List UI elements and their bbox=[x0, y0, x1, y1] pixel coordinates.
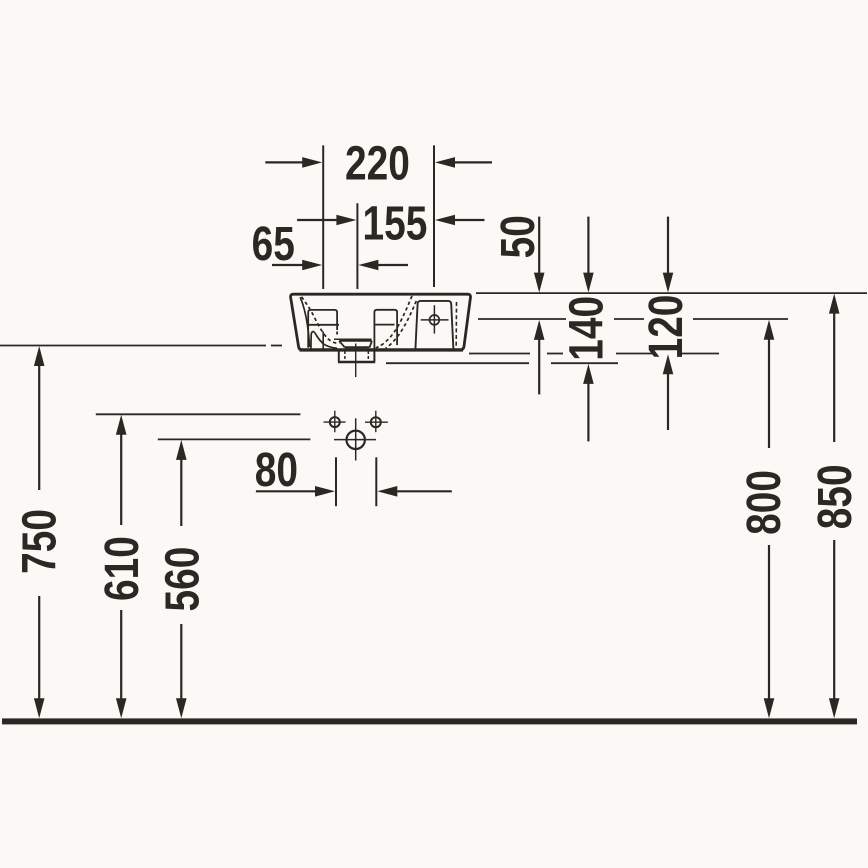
svg-text:610: 610 bbox=[95, 536, 149, 601]
svg-text:220: 220 bbox=[345, 137, 410, 191]
svg-text:140: 140 bbox=[559, 296, 613, 361]
svg-text:850: 850 bbox=[808, 464, 862, 529]
svg-text:800: 800 bbox=[737, 470, 791, 535]
svg-text:155: 155 bbox=[362, 197, 427, 251]
svg-text:80: 80 bbox=[255, 443, 298, 497]
svg-text:50: 50 bbox=[491, 215, 545, 258]
svg-text:560: 560 bbox=[156, 547, 210, 612]
svg-text:65: 65 bbox=[252, 217, 295, 271]
svg-text:750: 750 bbox=[13, 509, 67, 574]
svg-text:120: 120 bbox=[639, 295, 693, 360]
